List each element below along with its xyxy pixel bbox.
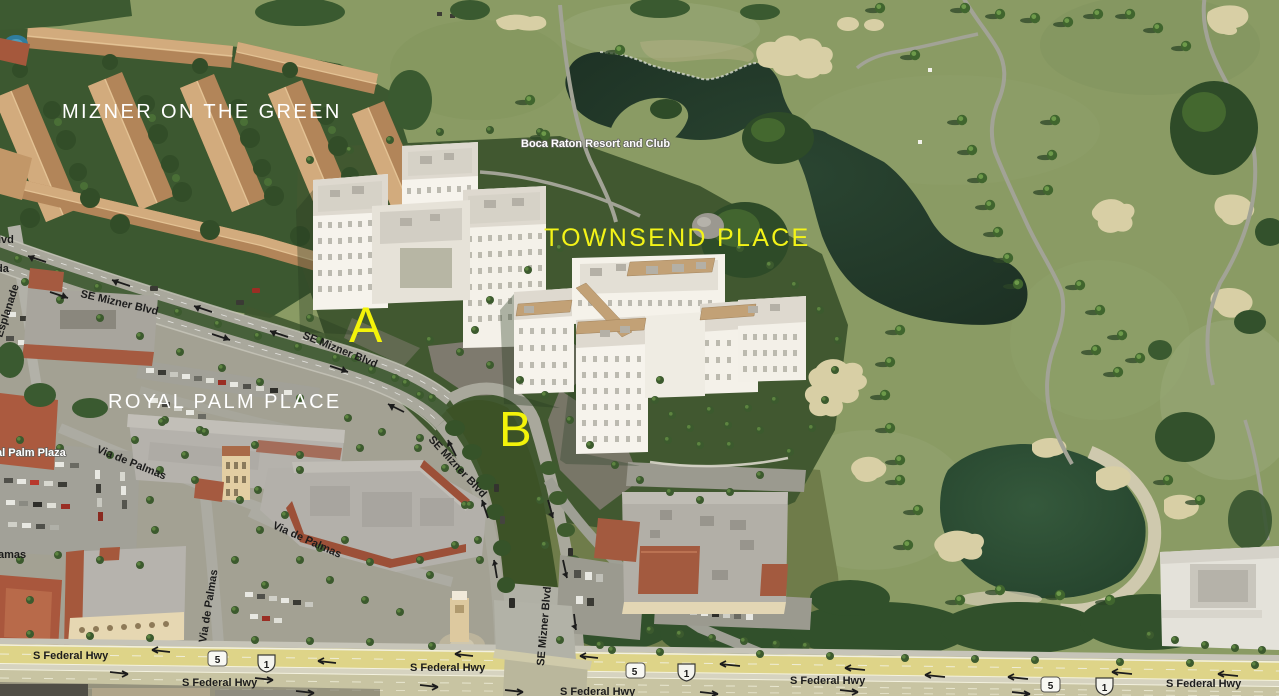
- svg-text:S Federal Hwy: S Federal Hwy: [33, 650, 109, 662]
- svg-text:al Palm Plaza: al Palm Plaza: [0, 447, 67, 459]
- svg-text:1: 1: [264, 660, 270, 671]
- svg-text:amas: amas: [0, 549, 26, 561]
- svg-text:TOWNSEND PLACE: TOWNSEND PLACE: [544, 224, 811, 252]
- svg-text:B: B: [499, 403, 532, 457]
- svg-text:Boca Raton Resort and Club: Boca Raton Resort and Club: [521, 138, 670, 150]
- svg-text:A: A: [349, 297, 383, 353]
- svg-text:S Federal Hwy: S Federal Hwy: [560, 686, 636, 696]
- svg-text:lvd: lvd: [0, 234, 14, 246]
- svg-text:1: 1: [1102, 683, 1108, 694]
- svg-text:S Federal Hwy: S Federal Hwy: [410, 662, 486, 674]
- svg-text:S Federal Hwy: S Federal Hwy: [1166, 678, 1242, 690]
- svg-text:5: 5: [215, 655, 221, 666]
- svg-text:5: 5: [632, 667, 638, 678]
- svg-text:1: 1: [684, 669, 690, 680]
- svg-text:S Federal Hwy: S Federal Hwy: [790, 675, 866, 687]
- svg-text:da: da: [0, 263, 10, 275]
- svg-text:S Federal Hwy: S Federal Hwy: [182, 677, 258, 689]
- svg-text:ROYAL PALM PLACE: ROYAL PALM PLACE: [108, 391, 342, 413]
- svg-text:5: 5: [1048, 681, 1054, 692]
- svg-text:MIZNER ON THE GREEN: MIZNER ON THE GREEN: [62, 101, 342, 123]
